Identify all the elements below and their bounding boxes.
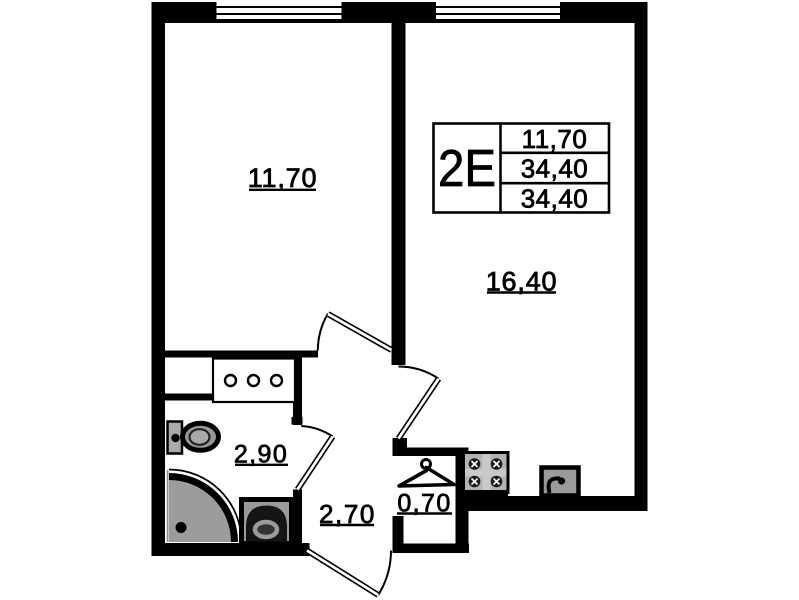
svg-text:34,40: 34,40: [521, 184, 589, 214]
svg-text:2Е: 2Е: [438, 140, 496, 198]
svg-text:11,70: 11,70: [248, 163, 318, 193]
svg-text:34,40: 34,40: [521, 154, 589, 184]
svg-text:11,70: 11,70: [522, 124, 588, 154]
